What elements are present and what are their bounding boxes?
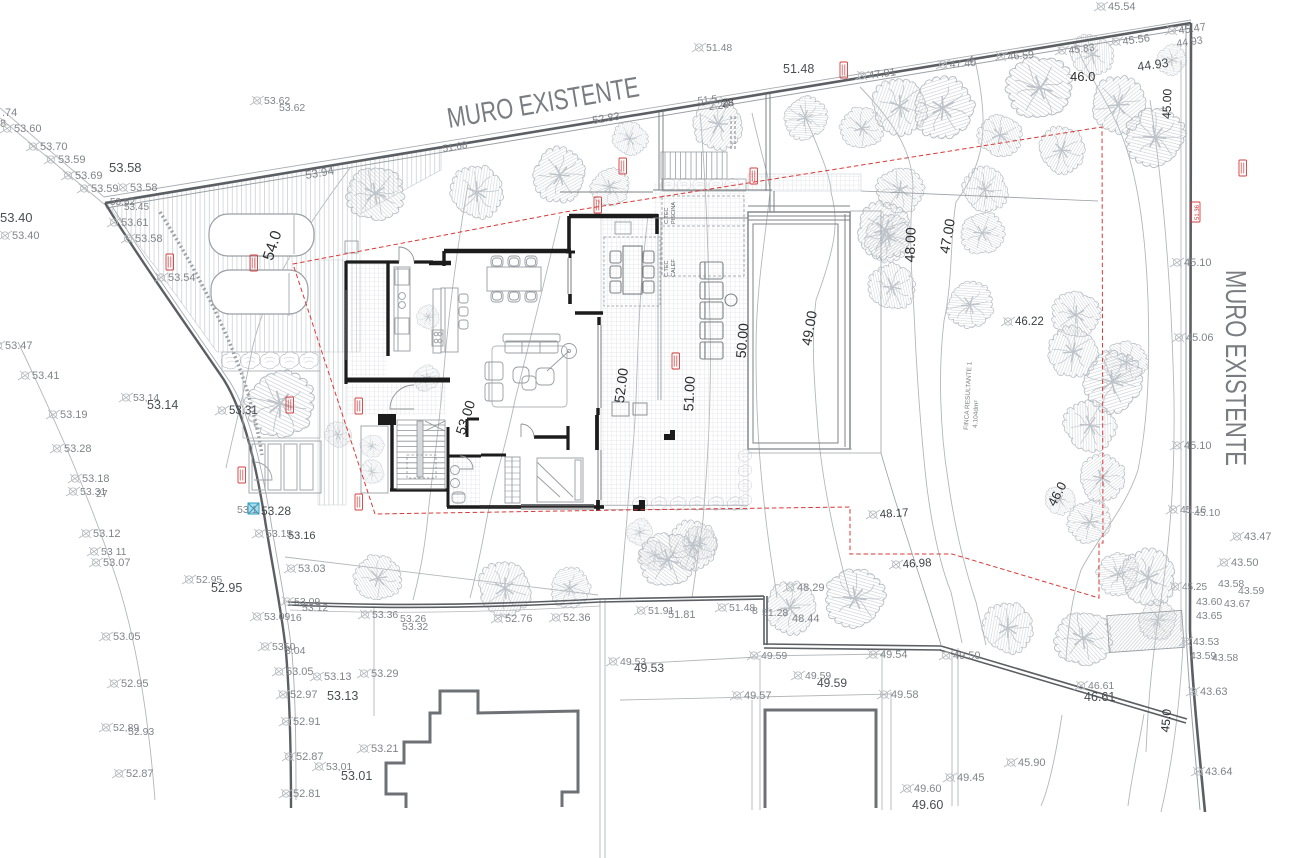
svg-text:53.05: 53.05 [286,666,314,678]
svg-text:53.70: 53.70 [40,141,68,153]
svg-text:50.00: 50.00 [733,322,752,359]
svg-text:45.06: 45.06 [1186,332,1214,344]
svg-text:4: 4 [968,54,974,66]
svg-text:53.01: 53.01 [341,769,372,783]
svg-text:43.65: 43.65 [1196,610,1222,622]
svg-text:43.53: 43.53 [1193,636,1219,648]
svg-text:43.67: 43.67 [1224,598,1250,610]
svg-text:53.45: 53.45 [124,202,149,213]
svg-text:53.61: 53.61 [121,217,149,229]
svg-text:46.59: 46.59 [1007,49,1034,63]
svg-text:45.54: 45.54 [1108,1,1136,13]
svg-text:48.17: 48.17 [879,507,909,521]
svg-text:53.58: 53.58 [135,233,163,245]
svg-text:53.47: 53.47 [5,340,33,352]
svg-text:43.63: 43.63 [1200,686,1228,698]
svg-text:53.13: 53.13 [324,671,352,683]
svg-text:51.48: 51.48 [783,62,814,76]
svg-text:CALEF: CALEF [671,259,677,277]
svg-text:43.64: 43.64 [1205,766,1233,778]
svg-text:PISCINA: PISCINA [671,202,677,224]
svg-text:53.69: 53.69 [75,170,103,182]
svg-text:53.14: 53.14 [147,398,178,412]
svg-text:C.TEC: C.TEC [664,260,670,277]
svg-text:52.87: 52.87 [296,751,324,763]
svg-text:48.00: 48.00 [901,227,918,263]
svg-text:MURO EXISTENTE: MURO EXISTENTE [1219,270,1251,466]
svg-text:49.58: 49.58 [891,689,919,701]
svg-text:52.95: 52.95 [121,678,149,690]
svg-text:53.13: 53.13 [327,689,358,703]
svg-text:52.36: 52.36 [563,612,591,624]
svg-text:53.09: 53.09 [264,611,290,623]
svg-text:27: 27 [96,488,108,500]
svg-text:53.40: 53.40 [0,210,33,225]
svg-text:46.22: 46.22 [1015,316,1044,328]
svg-text:51.48: 51.48 [706,42,732,54]
svg-text:53.40: 53.40 [12,230,40,242]
svg-text:53.41: 53.41 [32,370,60,382]
svg-text:45.10: 45.10 [1184,440,1212,452]
svg-text:4.104dm²: 4.104dm² [972,399,980,428]
svg-text:53.16: 53.16 [288,530,316,542]
svg-text:51.36: 51.36 [1195,204,1201,220]
svg-text:51.28: 51.28 [762,607,788,619]
svg-text:52.97: 52.97 [290,689,318,701]
svg-text:48.44: 48.44 [792,613,820,625]
svg-text:53.12: 53.12 [302,602,328,614]
svg-text:49.53: 49.53 [634,661,664,675]
svg-text:53.58: 53.58 [130,182,158,194]
svg-text:49.60: 49.60 [914,783,942,795]
svg-text:49.50: 49.50 [953,650,981,662]
svg-text:53.28: 53.28 [64,443,92,455]
svg-text:53.31: 53.31 [229,405,258,417]
svg-text:3.04: 3.04 [285,645,306,657]
svg-text:43.50: 43.50 [1231,557,1259,569]
svg-text:43.60: 43.60 [1196,596,1222,608]
svg-text:28: 28 [721,97,734,110]
svg-text:53.21: 53.21 [371,743,399,755]
svg-text:53.05: 53.05 [113,631,141,643]
svg-text:51.81: 51.81 [668,609,696,621]
svg-text:48.29: 48.29 [797,582,825,594]
svg-text:53.32: 53.32 [402,621,428,633]
svg-text:49.57: 49.57 [744,690,772,702]
svg-text:53.60: 53.60 [14,123,42,135]
svg-text:53.62: 53.62 [279,102,305,114]
svg-text:53.19: 53.19 [60,409,88,421]
svg-text:53.03: 53.03 [298,563,326,575]
svg-text:45.25: 45.25 [1182,582,1207,593]
svg-text:52.76: 52.76 [505,613,533,625]
svg-text:52.87: 52.87 [126,768,154,780]
svg-text:53.36: 53.36 [372,609,398,621]
svg-text:53.07: 53.07 [103,557,131,569]
svg-text:45.00: 45.00 [1159,88,1174,119]
svg-text:49.54: 49.54 [880,649,908,661]
svg-text:45.90: 45.90 [1018,757,1046,769]
svg-text:53.59: 53.59 [58,154,86,166]
svg-text:43.59: 43.59 [1238,585,1264,597]
svg-text:53.59: 53.59 [91,183,119,195]
svg-text:8: 8 [752,605,758,617]
svg-text:45.0: 45.0 [1158,708,1174,733]
svg-text:53.28: 53.28 [261,504,291,518]
svg-text:49.45: 49.45 [957,772,985,784]
svg-text:53.1: 53.1 [237,504,258,516]
svg-text:53.54: 53.54 [168,272,196,284]
svg-text:52.81: 52.81 [293,788,321,800]
svg-text:53.18: 53.18 [82,473,110,485]
svg-text:52.91: 52.91 [293,716,321,728]
svg-text:45.10: 45.10 [1184,257,1212,269]
svg-text:49.59: 49.59 [761,650,787,662]
svg-text:16: 16 [290,612,302,624]
svg-text:43.47: 43.47 [1244,531,1272,543]
svg-text:53.12: 53.12 [93,528,121,540]
svg-text:45.10: 45.10 [1194,507,1220,519]
svg-text:53.58: 53.58 [109,160,142,175]
svg-text:49.59: 49.59 [817,676,847,690]
svg-text:52.93: 52.93 [128,726,154,738]
svg-text:C.TEC: C.TEC [664,207,670,224]
svg-text:49.60: 49.60 [912,798,943,812]
svg-text:46.98: 46.98 [902,557,932,571]
svg-text:53.29: 53.29 [371,668,399,680]
svg-text:46.0: 46.0 [1070,69,1095,84]
svg-text:52.95: 52.95 [211,581,242,595]
svg-text:43.58: 43.58 [1212,652,1238,664]
svg-text:46.61: 46.61 [1084,690,1115,704]
svg-text:51.00: 51.00 [680,376,698,412]
